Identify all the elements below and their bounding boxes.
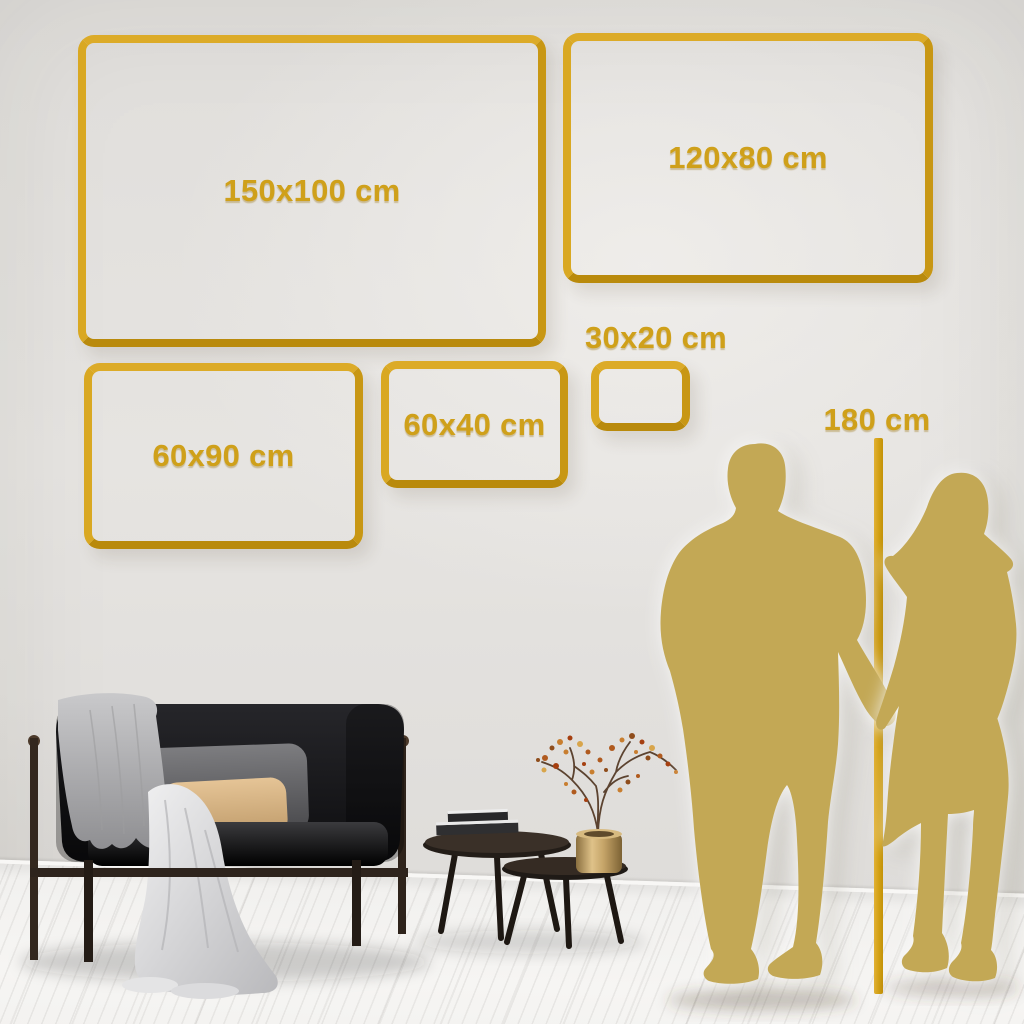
size-guide-scene: 150x100 cm 120x80 cm 60x90 cm 60x40 cm 3…: [0, 0, 1024, 1024]
throw-blanket: [58, 693, 167, 849]
size-label-60x90: 60x90 cm: [152, 438, 294, 474]
seat-cushion: [88, 822, 388, 866]
size-frame-60x40: 60x40 cm: [381, 361, 568, 488]
sofa-dowel-left: [28, 735, 40, 747]
vase-opening: [584, 831, 614, 837]
height-reference-label: 180 cm: [812, 402, 942, 438]
big-table-surface: [425, 831, 569, 853]
sofa-arm-right: [346, 704, 404, 862]
blanket-folds: [90, 704, 144, 834]
size-frame-60x90: 60x90 cm: [84, 363, 363, 549]
big-table-top: [423, 832, 571, 858]
gray-pillow: [126, 743, 309, 839]
sofa-body: [56, 704, 404, 862]
branches: [542, 742, 676, 833]
brass-vase: [576, 833, 622, 873]
sofa-dowel-right: [397, 735, 409, 747]
size-label-60x40: 60x40 cm: [403, 407, 545, 443]
big-table-surface2: [425, 831, 569, 853]
size-frame-30x20: [591, 361, 690, 431]
height-reference-line: [874, 438, 883, 994]
tan-pillow: [161, 777, 289, 841]
size-label-150x100: 150x100 cm: [223, 173, 400, 209]
dried-branch-plant: [536, 733, 678, 873]
berries: [536, 733, 678, 802]
sofa-arm-left: [56, 704, 114, 862]
books: [436, 809, 519, 836]
size-frame-150x100: 150x100 cm: [78, 35, 546, 347]
floor: [0, 858, 1024, 1024]
small-table-surface: [504, 857, 626, 875]
vase-rim: [576, 829, 622, 839]
size-label-120x80: 120x80 cm: [668, 140, 828, 176]
size-label-30x20: 30x20 cm: [576, 320, 736, 356]
size-frame-120x80: 120x80 cm: [563, 33, 933, 283]
